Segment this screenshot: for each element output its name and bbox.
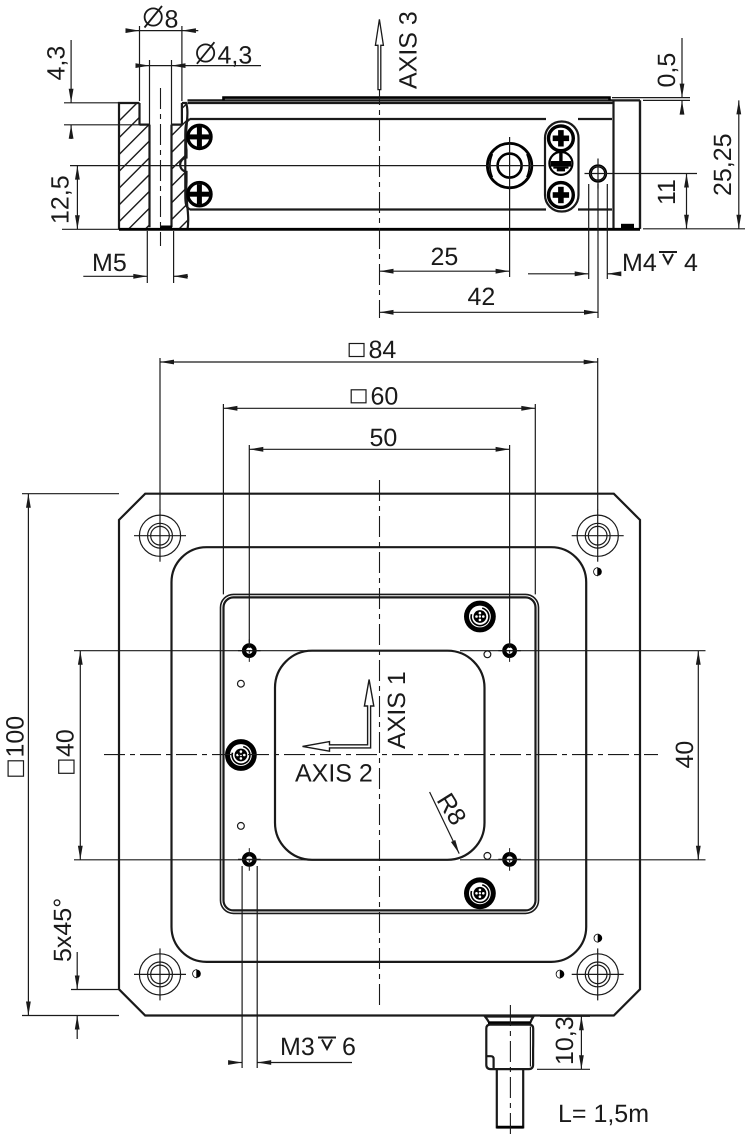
svg-text:25: 25 (431, 243, 459, 271)
svg-text:M5: M5 (92, 249, 127, 277)
svg-text:8: 8 (165, 6, 179, 34)
svg-text:L= 1,5m: L= 1,5m (558, 1100, 649, 1128)
svg-text:60: 60 (371, 382, 399, 410)
svg-text:AXIS 3: AXIS 3 (395, 11, 423, 89)
svg-text:M4: M4 (622, 249, 657, 277)
svg-text:25,25: 25,25 (709, 133, 737, 196)
svg-text:84: 84 (369, 336, 397, 364)
svg-text:50: 50 (370, 424, 398, 452)
svg-text:0,5: 0,5 (653, 53, 681, 88)
svg-text:M3: M3 (280, 1033, 315, 1061)
svg-text:5x45°: 5x45° (49, 898, 77, 962)
svg-text:AXIS 2: AXIS 2 (295, 760, 373, 788)
svg-text:6: 6 (342, 1033, 356, 1061)
svg-text:10,3: 10,3 (551, 1016, 579, 1065)
svg-text:40: 40 (671, 741, 699, 769)
svg-text:42: 42 (468, 283, 496, 311)
svg-text:4: 4 (684, 249, 698, 277)
svg-text:100: 100 (2, 716, 30, 758)
svg-text:11: 11 (653, 179, 681, 205)
svg-text:AXIS 1: AXIS 1 (383, 671, 411, 749)
svg-text:12,5: 12,5 (47, 175, 75, 224)
svg-text:4,3: 4,3 (43, 46, 71, 81)
svg-text:40: 40 (52, 729, 80, 757)
